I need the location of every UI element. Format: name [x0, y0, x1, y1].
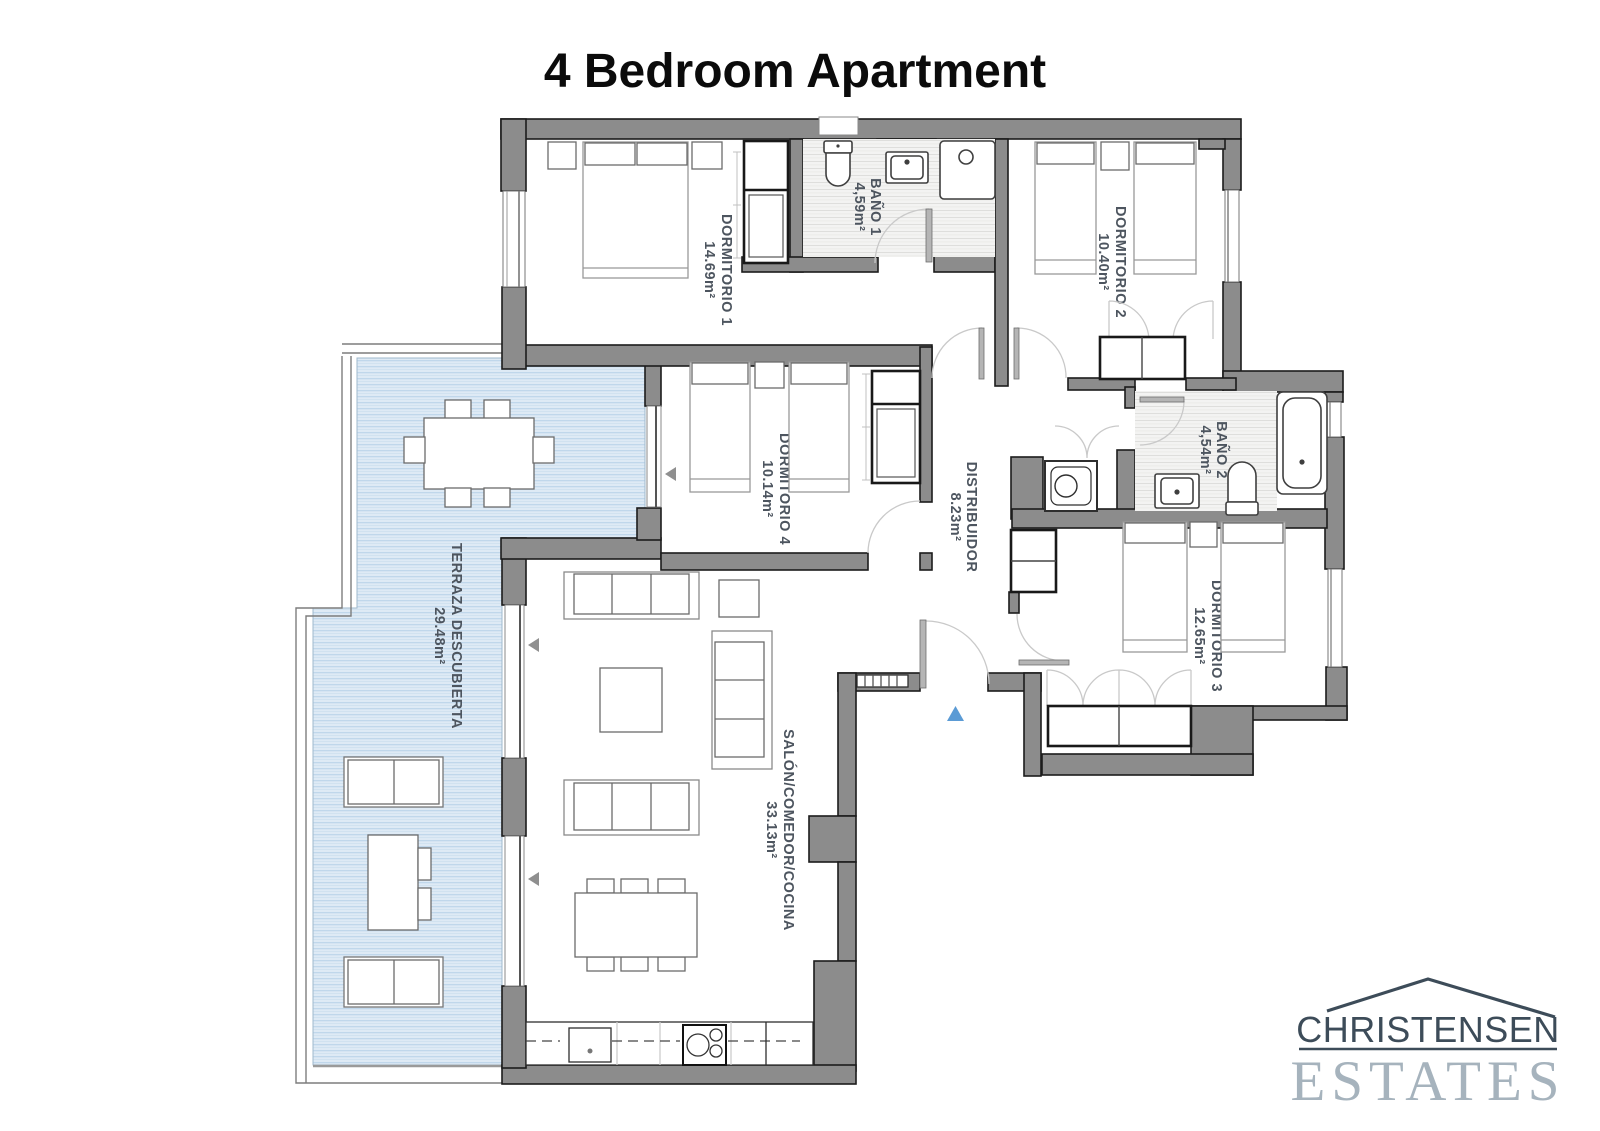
svg-text:CHRISTENSEN: CHRISTENSEN — [1296, 1009, 1560, 1050]
svg-text:12.65m²: 12.65m² — [1191, 607, 1207, 665]
svg-text:14.69m²: 14.69m² — [701, 241, 717, 299]
svg-text:BAÑO 1: BAÑO 1 — [867, 178, 885, 236]
svg-text:SALÓN/COMEDOR/COCINA: SALÓN/COMEDOR/COCINA — [780, 729, 798, 931]
svg-text:DISTRIBUIDOR: DISTRIBUIDOR — [963, 462, 979, 573]
svg-text:DORMITORIO 1: DORMITORIO 1 — [718, 214, 734, 326]
svg-text:ESTATES: ESTATES — [1291, 1050, 1566, 1113]
svg-text:10.14m²: 10.14m² — [759, 460, 775, 518]
svg-text:4,59m²: 4,59m² — [851, 183, 867, 232]
svg-text:29.48m²: 29.48m² — [431, 607, 447, 665]
svg-text:8.23m²: 8.23m² — [947, 493, 963, 542]
svg-text:TERRAZA DESCUBIERTA: TERRAZA DESCUBIERTA — [448, 543, 464, 729]
svg-text:4 Bedroom Apartment: 4 Bedroom Apartment — [544, 45, 1046, 98]
svg-text:BAÑO 2: BAÑO 2 — [1213, 421, 1231, 479]
svg-text:33.13m²: 33.13m² — [763, 801, 779, 859]
svg-text:10.40m²: 10.40m² — [1095, 233, 1111, 291]
svg-text:4,54m²: 4,54m² — [1197, 426, 1213, 475]
